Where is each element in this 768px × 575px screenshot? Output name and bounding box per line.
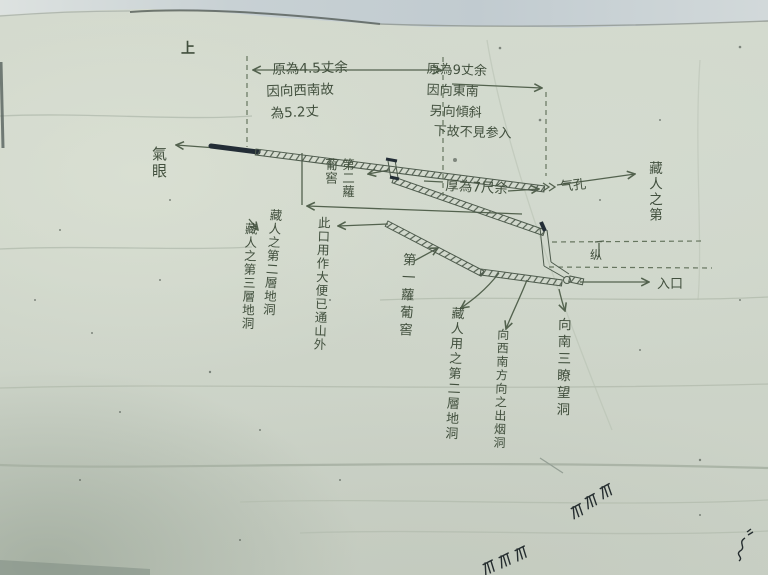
entrance-label: 入口 — [657, 273, 683, 292]
photo-of-hand-drawn-tunnel-map: 上 氣眼 原為4.5丈余 因向西南故 為5.2丈 原為9丈余 因向東南 另向傾斜… — [0, 0, 768, 575]
upper-measure-line1: 原為4.5丈余 — [272, 55, 348, 78]
air-hole-label: 气孔 — [559, 173, 587, 195]
second-layer-label: 藏人之第二層地洞 — [258, 208, 285, 329]
lower-cave-label: 藏人用之第二層地洞 — [440, 306, 466, 449]
lookout-label: 向南三瞭望洞 — [551, 317, 573, 427]
upper-measure-line2: 因向西南故 — [266, 78, 334, 100]
thickness-label: 厚為7尺余 — [445, 174, 509, 197]
third-layer-label: 藏人之第三層地洞 — [237, 222, 260, 343]
right-measure-line3: 另向傾斜 — [429, 100, 482, 121]
right-measure-line2: 因向東南 — [426, 79, 479, 100]
latrine-label: 此口用作大便已通山外 — [309, 216, 333, 365]
hiding-right-label: 藏人之第 — [644, 161, 664, 229]
cellar-upper-label: 第二蘿葡窖 — [322, 158, 356, 205]
upper-measure-line3: 為5.2丈 — [270, 99, 319, 122]
smoke-outlet-label: 向西南方向之出烟洞 — [491, 328, 512, 457]
right-measure-line1: 原為9丈余 — [426, 58, 487, 79]
air-eye-label: 氣眼 — [149, 146, 170, 190]
right-measure-line4: 下故不見参入 — [433, 120, 512, 142]
cellar-center-label: 第一蘿葡窖 — [393, 252, 418, 347]
depth-mark-label: 纵 — [590, 246, 602, 263]
handwritten-labels: 上 氣眼 原為4.5丈余 因向西南故 為5.2丈 原為9丈余 因向東南 另向傾斜… — [0, 0, 768, 575]
orientation-mark: 上 — [181, 38, 195, 58]
